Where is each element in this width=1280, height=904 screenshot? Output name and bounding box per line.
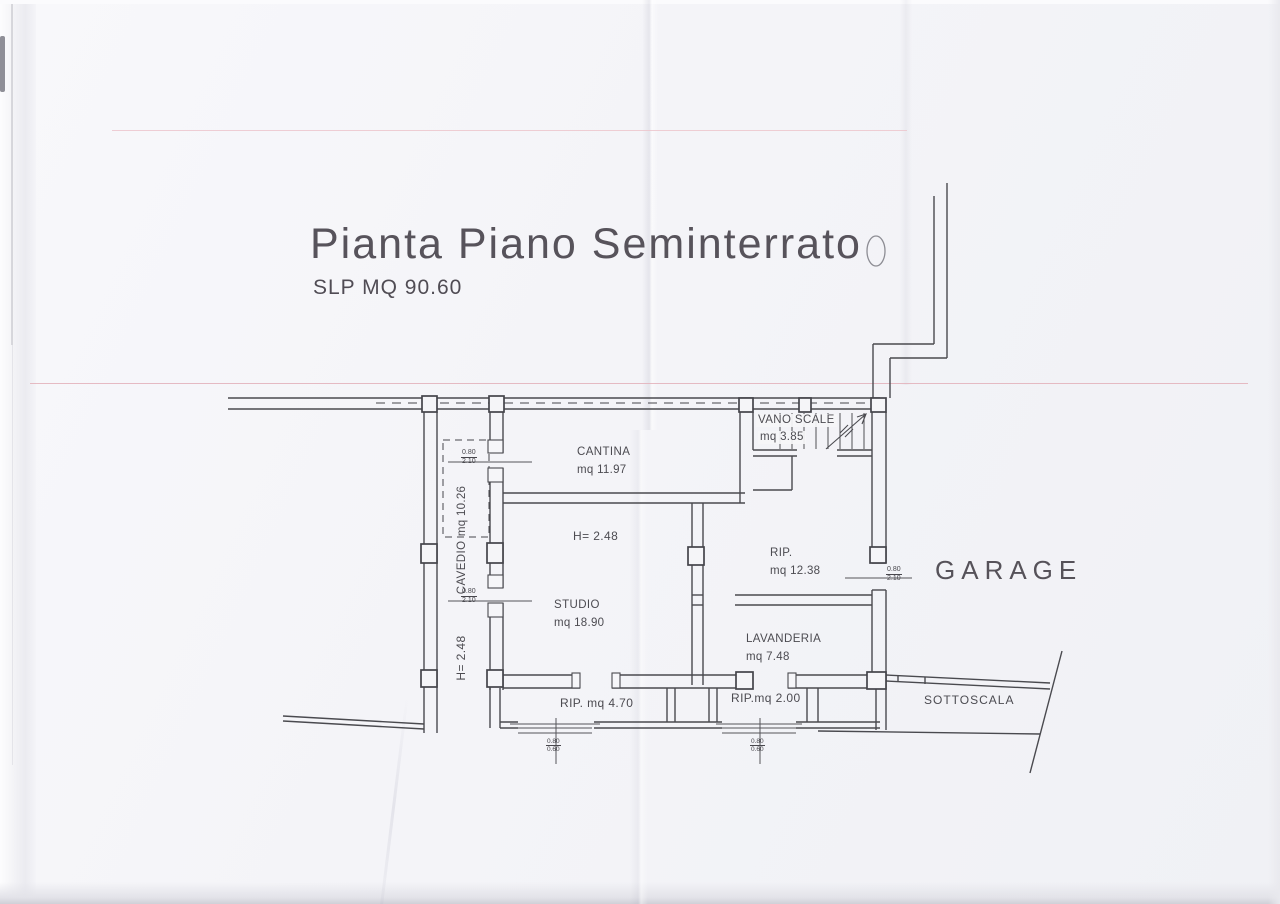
floor-plan-drawing bbox=[0, 0, 1280, 904]
scanned-floor-plan-page: Pianta Piano Seminterrato SLP MQ 90.60 V… bbox=[0, 0, 1280, 904]
room-label-vano-scale-name: VANO SCALE bbox=[756, 414, 837, 427]
room-label-studio: STUDIO mq 18.90 bbox=[554, 595, 604, 632]
room-label-cavedio: CAVEDIO mq 10.26 bbox=[452, 486, 470, 595]
height-label-studio: H= 2.48 bbox=[573, 530, 618, 544]
punch-hole bbox=[867, 236, 885, 266]
plan-subtitle: SLP MQ 90.60 bbox=[313, 276, 462, 300]
room-label-garage: GARAGE bbox=[935, 556, 1082, 586]
room-label-rip-destro: RIP.mq 2.00 bbox=[731, 692, 801, 706]
walls bbox=[228, 183, 1062, 773]
door-dimension-cavedio-cantina: 0.80 2.10 bbox=[461, 449, 477, 466]
height-label-cavedio: H= 2.48 bbox=[455, 635, 469, 680]
room-label-sottoscala: SOTTOSCALA bbox=[924, 694, 1014, 708]
door-dimension-cavedio-studio: 0.80 2.10 bbox=[461, 588, 477, 605]
door-dimension-rip-garage: 0.80 2.10 bbox=[886, 566, 902, 583]
room-label-rip-sinistro: RIP. mq 4.70 bbox=[560, 697, 633, 711]
window-dimension-rip-destro: 0.80 0.60 bbox=[750, 738, 765, 753]
plan-title: Pianta Piano Seminterrato bbox=[310, 220, 862, 269]
thin-lines bbox=[448, 462, 912, 764]
room-label-cantina: CANTINA mq 11.97 bbox=[577, 442, 630, 479]
window-dimension-rip-sinistro: 0.80 0.60 bbox=[546, 738, 561, 753]
room-label-vano-scale-area: mq 3.85 bbox=[758, 431, 806, 444]
room-label-ripostiglio: RIP. mq 12.38 bbox=[770, 543, 820, 580]
room-label-lavanderia: LAVANDERIA mq 7.48 bbox=[746, 629, 821, 666]
